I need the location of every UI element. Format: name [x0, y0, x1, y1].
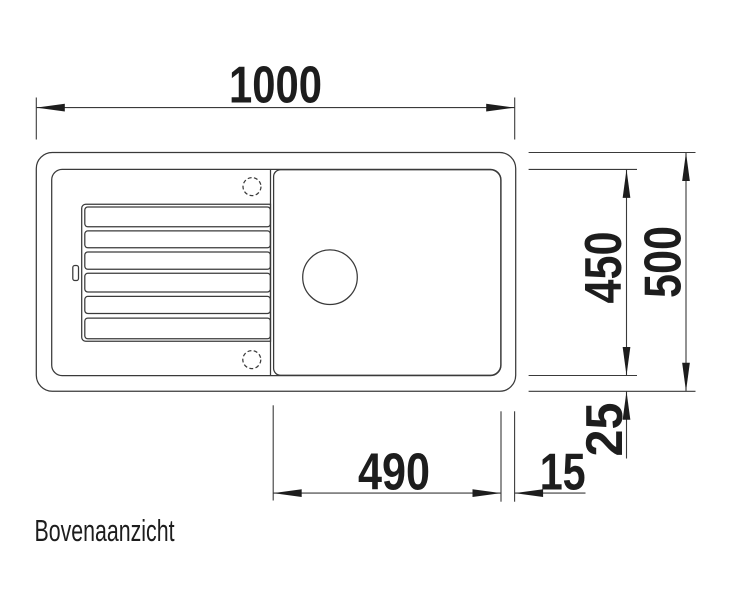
svg-text:450: 450 — [574, 232, 632, 304]
svg-text:490: 490 — [358, 443, 430, 501]
svg-text:500: 500 — [634, 226, 692, 298]
svg-text:Bovenaanzicht: Bovenaanzicht — [35, 515, 175, 548]
svg-text:1000: 1000 — [229, 56, 322, 114]
svg-text:15: 15 — [540, 443, 586, 501]
